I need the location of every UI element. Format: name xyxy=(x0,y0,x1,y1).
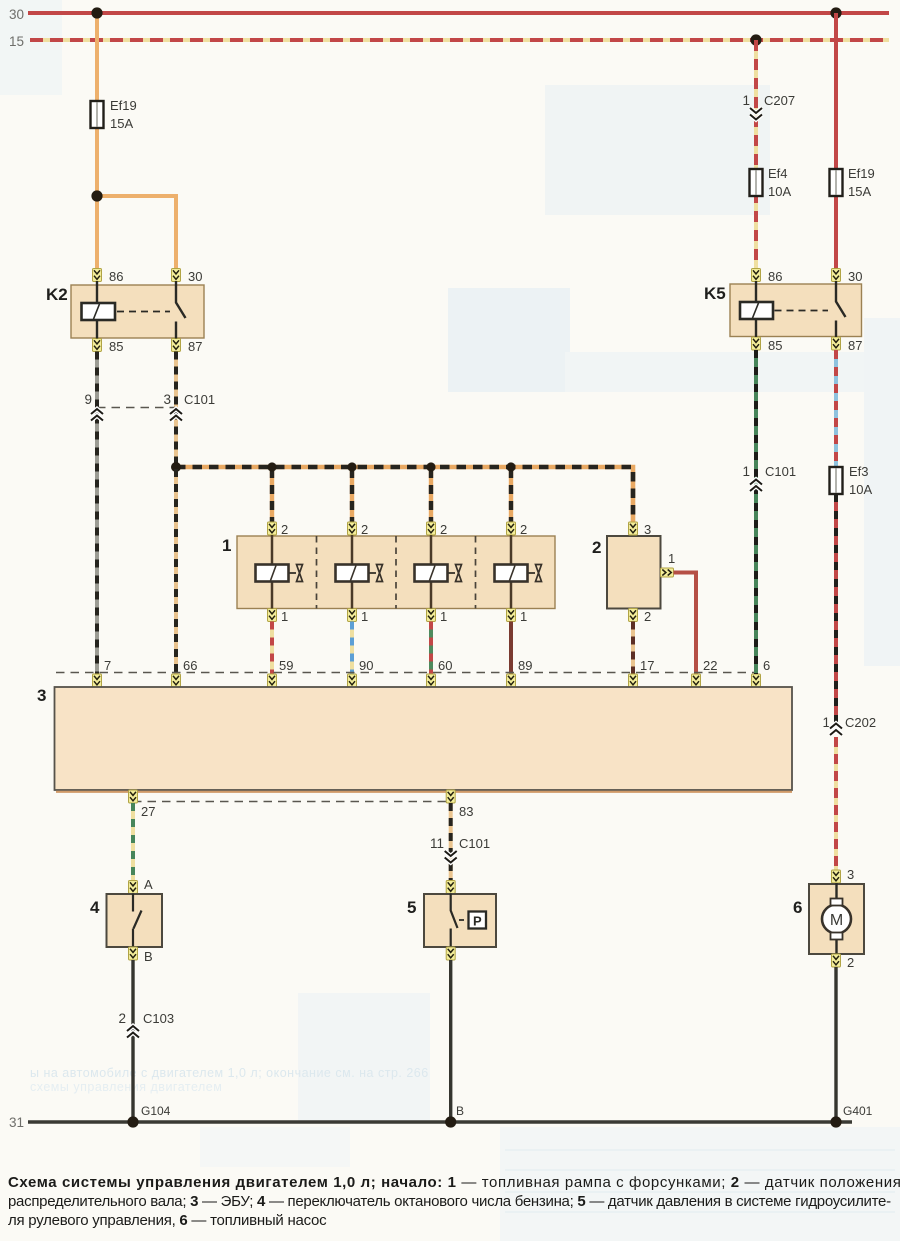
svg-text:15: 15 xyxy=(9,34,24,49)
svg-text:B: B xyxy=(456,1104,464,1118)
svg-text:3: 3 xyxy=(644,522,651,537)
svg-text:15A: 15A xyxy=(110,116,133,131)
svg-text:3: 3 xyxy=(37,686,46,705)
svg-text:90: 90 xyxy=(359,658,373,673)
svg-text:10A: 10A xyxy=(849,482,872,497)
svg-text:C101: C101 xyxy=(459,836,490,851)
svg-text:B: B xyxy=(144,949,153,964)
svg-text:3: 3 xyxy=(847,867,854,882)
svg-text:1: 1 xyxy=(520,609,527,624)
svg-text:1: 1 xyxy=(668,551,675,566)
svg-text:1: 1 xyxy=(361,609,368,624)
svg-text:G401: G401 xyxy=(843,1104,873,1118)
svg-text:Ef3: Ef3 xyxy=(849,464,869,479)
svg-text:7: 7 xyxy=(104,658,111,673)
svg-text:1: 1 xyxy=(822,715,830,730)
svg-text:ы на автомобиле с двигателем 1: ы на автомобиле с двигателем 1,0 л; окон… xyxy=(30,1066,429,1080)
svg-text:2: 2 xyxy=(440,522,447,537)
svg-text:1: 1 xyxy=(742,93,750,108)
svg-text:1: 1 xyxy=(281,609,288,624)
svg-text:6: 6 xyxy=(793,898,802,917)
svg-text:A: A xyxy=(144,877,153,892)
svg-text:85: 85 xyxy=(109,339,123,354)
svg-text:C101: C101 xyxy=(184,392,215,407)
svg-text:K2: K2 xyxy=(46,285,68,304)
svg-text:60: 60 xyxy=(438,658,452,673)
svg-text:59: 59 xyxy=(279,658,293,673)
svg-text:C101: C101 xyxy=(765,464,796,479)
svg-text:9: 9 xyxy=(84,392,92,407)
svg-text:4: 4 xyxy=(90,898,100,917)
svg-text:22: 22 xyxy=(703,658,717,673)
svg-text:85: 85 xyxy=(768,338,782,353)
svg-text:27: 27 xyxy=(141,804,155,819)
svg-text:3: 3 xyxy=(163,392,171,407)
svg-text:1: 1 xyxy=(742,464,750,479)
svg-text:P: P xyxy=(473,914,482,929)
svg-text:86: 86 xyxy=(768,269,782,284)
svg-text:30: 30 xyxy=(9,7,24,22)
svg-text:86: 86 xyxy=(109,269,123,284)
svg-text:87: 87 xyxy=(188,339,202,354)
svg-text:2: 2 xyxy=(644,609,651,624)
svg-text:C207: C207 xyxy=(764,93,795,108)
svg-text:2: 2 xyxy=(847,955,854,970)
svg-text:2: 2 xyxy=(361,522,368,537)
svg-text:30: 30 xyxy=(188,269,202,284)
svg-text:2: 2 xyxy=(281,522,288,537)
svg-text:83: 83 xyxy=(459,804,473,819)
svg-text:M: M xyxy=(830,912,843,929)
svg-text:C202: C202 xyxy=(845,715,876,730)
svg-text:15A: 15A xyxy=(848,184,871,199)
svg-text:Ef19: Ef19 xyxy=(110,98,137,113)
svg-text:2: 2 xyxy=(520,522,527,537)
svg-text:C103: C103 xyxy=(143,1011,174,1026)
svg-text:10A: 10A xyxy=(768,184,791,199)
svg-text:31: 31 xyxy=(9,1115,24,1130)
svg-text:2: 2 xyxy=(592,538,601,557)
svg-text:K5: K5 xyxy=(704,284,726,303)
svg-text:схемы управления двигателем: схемы управления двигателем xyxy=(30,1080,222,1094)
svg-text:2: 2 xyxy=(118,1011,126,1026)
svg-text:17: 17 xyxy=(640,658,654,673)
svg-text:66: 66 xyxy=(183,658,197,673)
svg-text:89: 89 xyxy=(518,658,532,673)
svg-text:Ef4: Ef4 xyxy=(768,166,788,181)
svg-text:Ef19: Ef19 xyxy=(848,166,875,181)
svg-text:30: 30 xyxy=(848,269,862,284)
svg-text:1: 1 xyxy=(440,609,447,624)
svg-text:1: 1 xyxy=(222,536,231,555)
svg-text:5: 5 xyxy=(407,898,416,917)
svg-text:87: 87 xyxy=(848,338,862,353)
svg-text:6: 6 xyxy=(763,658,770,673)
svg-text:11: 11 xyxy=(430,836,444,851)
svg-text:G104: G104 xyxy=(141,1104,171,1118)
